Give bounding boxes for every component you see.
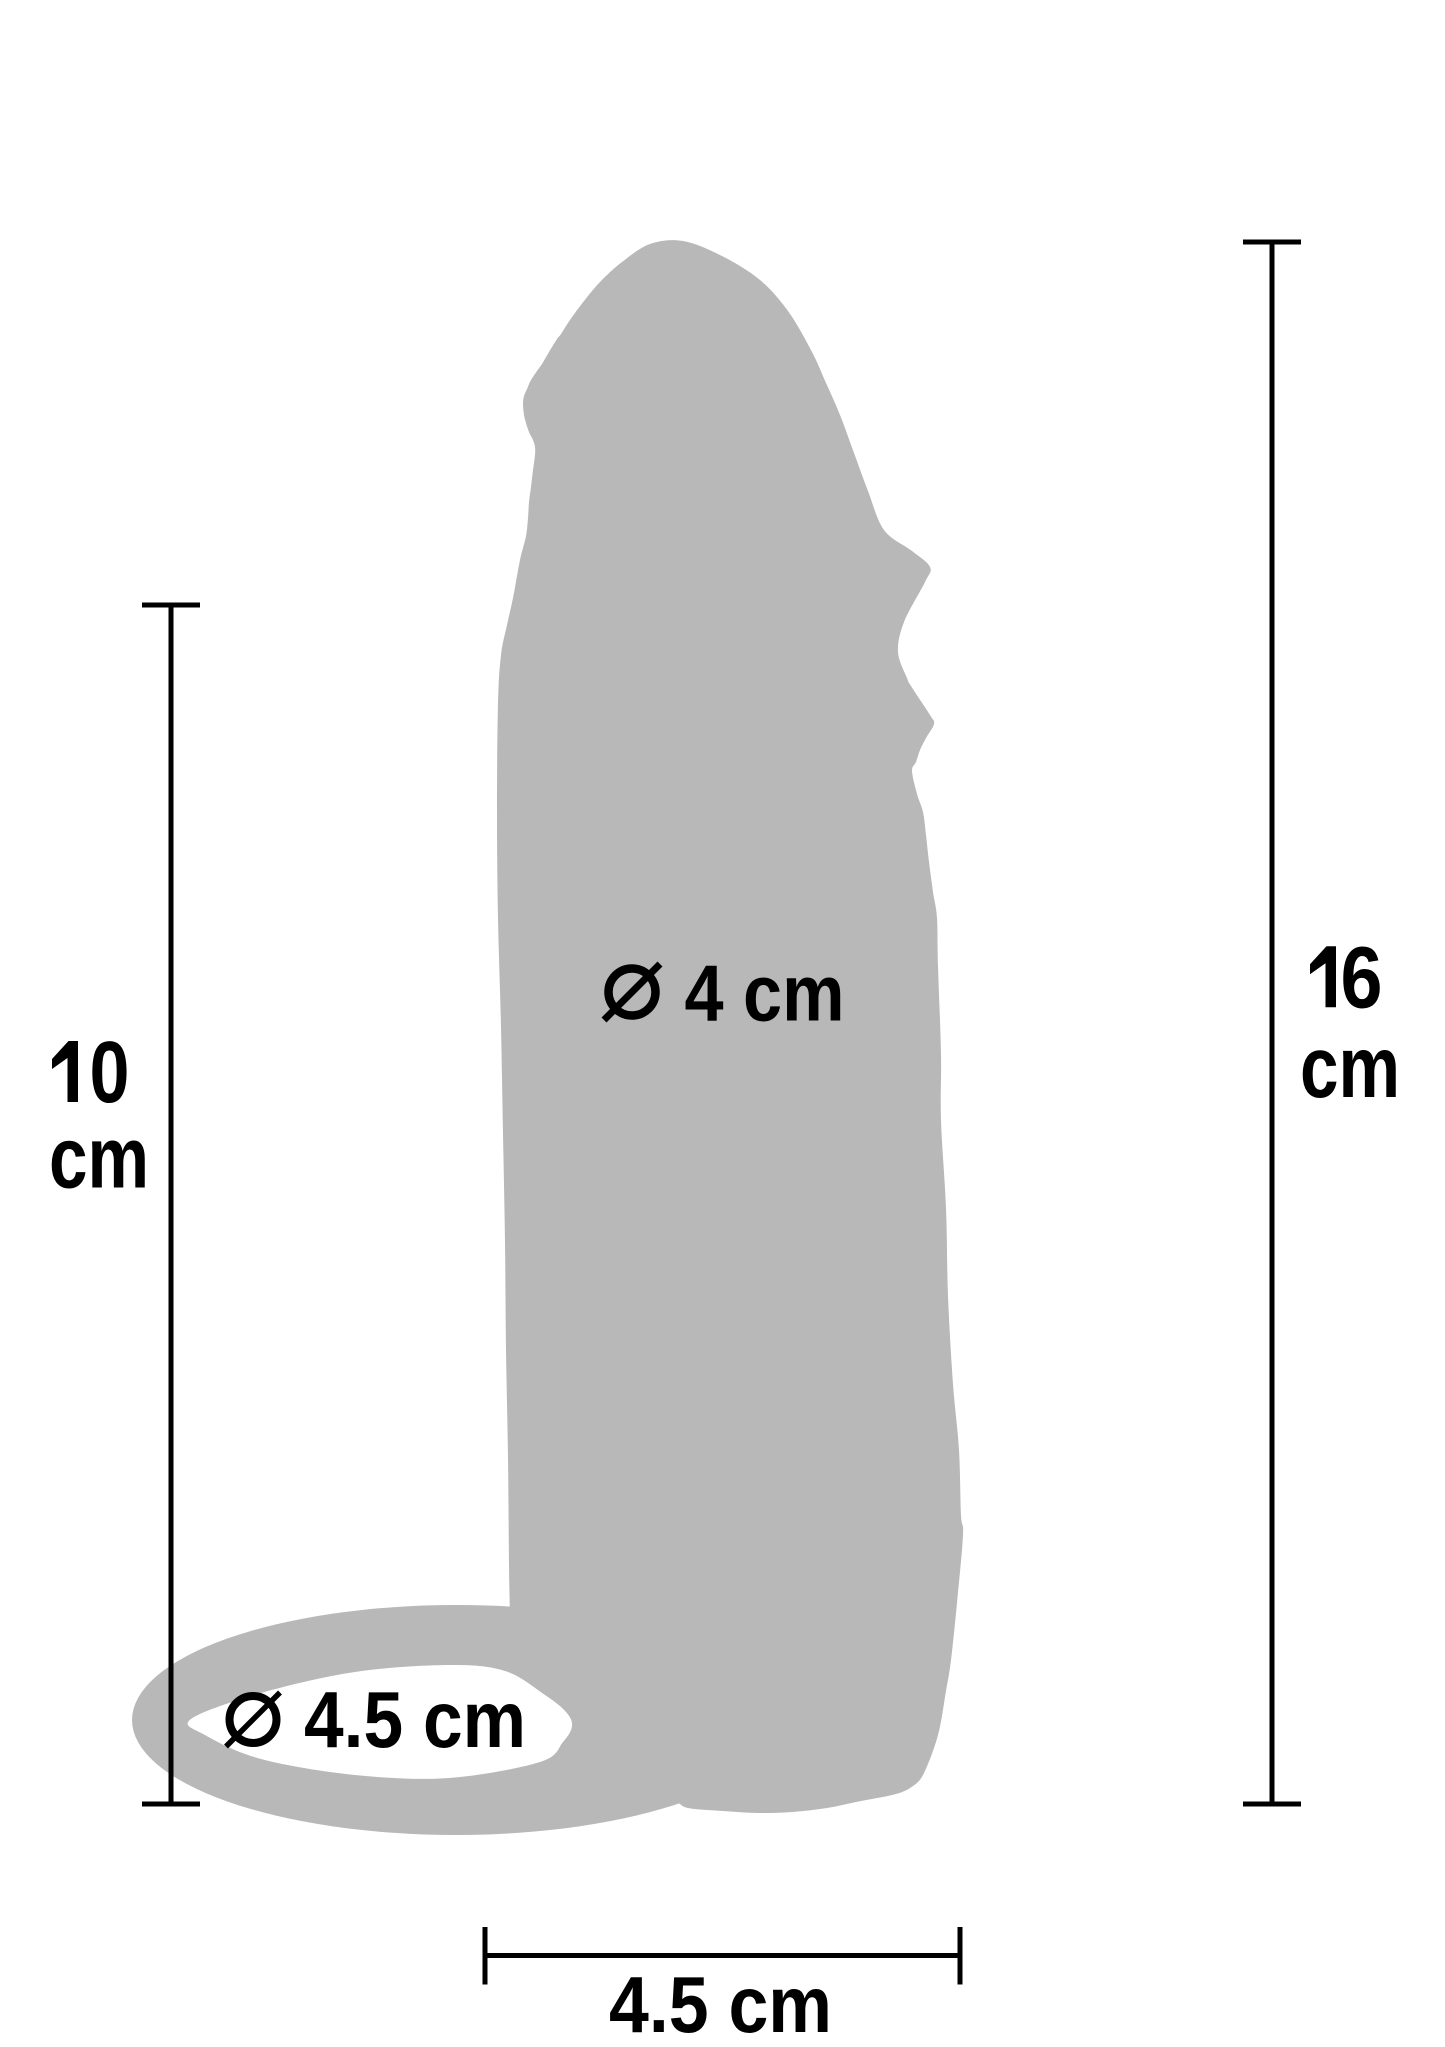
- svg-text:4.5 cm: 4.5 cm: [609, 1960, 832, 2047]
- svg-text:6: 6: [1341, 929, 1383, 1026]
- svg-text:0: 0: [90, 1024, 130, 1121]
- svg-text:4 cm: 4 cm: [685, 949, 845, 1038]
- svg-text:cm: cm: [49, 1110, 149, 1207]
- svg-text:cm: cm: [1300, 1019, 1400, 1116]
- svg-text:4.5 cm: 4.5 cm: [304, 1675, 526, 1764]
